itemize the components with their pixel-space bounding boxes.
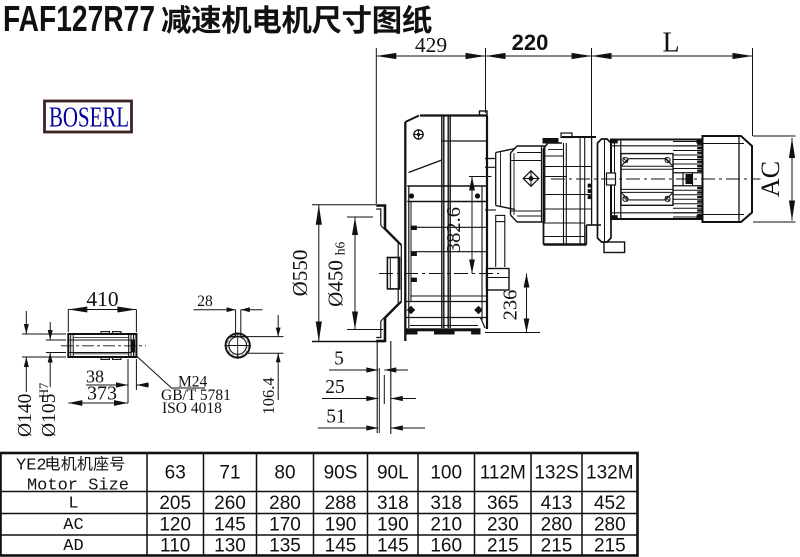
svg-text:132S: 132S — [534, 463, 578, 484]
svg-text:130: 130 — [214, 536, 246, 557]
svg-text:160: 160 — [430, 536, 462, 557]
svg-text:382.6: 382.6 — [443, 207, 465, 253]
svg-text:51: 51 — [326, 407, 346, 428]
svg-text:230: 230 — [487, 515, 519, 536]
svg-text:80: 80 — [274, 463, 295, 484]
svg-text:FAF127R77: FAF127R77 — [3, 0, 155, 39]
svg-text:145: 145 — [377, 536, 409, 557]
svg-text:63: 63 — [165, 463, 186, 484]
svg-text:410: 410 — [86, 287, 118, 311]
svg-text:452: 452 — [594, 493, 626, 514]
svg-text:25: 25 — [325, 377, 345, 398]
svg-text:215: 215 — [594, 536, 626, 557]
svg-text:215: 215 — [487, 536, 519, 557]
svg-text:190: 190 — [377, 515, 409, 536]
svg-text:L: L — [68, 495, 78, 514]
svg-text:71: 71 — [219, 463, 240, 484]
svg-text:220: 220 — [512, 30, 549, 55]
svg-text:106.4: 106.4 — [259, 377, 278, 414]
svg-text:BOSERL: BOSERL — [49, 102, 129, 134]
svg-text:280: 280 — [594, 515, 626, 536]
svg-text:90L: 90L — [377, 463, 409, 484]
svg-text:260: 260 — [214, 493, 246, 514]
svg-text:280: 280 — [541, 515, 573, 536]
svg-text:132M: 132M — [586, 463, 634, 484]
svg-text:AC: AC — [756, 161, 785, 197]
svg-text:ISO 4018: ISO 4018 — [162, 400, 222, 417]
svg-text:190: 190 — [325, 515, 357, 536]
svg-text:120: 120 — [159, 515, 191, 536]
svg-text:236: 236 — [500, 290, 522, 321]
svg-text:Ø450: Ø450 — [324, 260, 348, 307]
svg-text:280: 280 — [269, 493, 301, 514]
svg-text:112M: 112M — [480, 463, 526, 484]
svg-text:h6: h6 — [333, 242, 348, 256]
svg-text:AD: AD — [63, 537, 83, 556]
svg-text:413: 413 — [541, 493, 573, 514]
svg-text:AC: AC — [63, 516, 83, 535]
svg-text:373: 373 — [87, 383, 117, 405]
svg-text:145: 145 — [325, 536, 357, 557]
svg-text:135: 135 — [269, 536, 301, 557]
svg-text:318: 318 — [377, 493, 409, 514]
svg-text:Ø140: Ø140 — [15, 394, 36, 437]
svg-text:145: 145 — [214, 515, 246, 536]
svg-text:5: 5 — [334, 349, 344, 370]
svg-text:YE2: YE2 — [16, 457, 47, 476]
svg-text:215: 215 — [541, 536, 573, 557]
svg-text:429: 429 — [415, 33, 447, 57]
svg-text:90S: 90S — [324, 463, 358, 484]
svg-text:170: 170 — [269, 515, 301, 536]
svg-text:210: 210 — [430, 515, 462, 536]
svg-text:28: 28 — [197, 293, 213, 310]
svg-text:100: 100 — [430, 463, 462, 484]
svg-text:Motor Size: Motor Size — [27, 477, 129, 496]
svg-text:205: 205 — [159, 493, 191, 514]
svg-text:Ø550: Ø550 — [288, 250, 312, 297]
svg-text:H7: H7 — [37, 383, 51, 398]
svg-text:288: 288 — [325, 493, 357, 514]
svg-text:318: 318 — [430, 493, 462, 514]
svg-text:365: 365 — [487, 493, 519, 514]
svg-text:Ø105: Ø105 — [39, 394, 60, 437]
svg-text:L: L — [662, 28, 679, 59]
svg-text:110: 110 — [160, 536, 190, 557]
